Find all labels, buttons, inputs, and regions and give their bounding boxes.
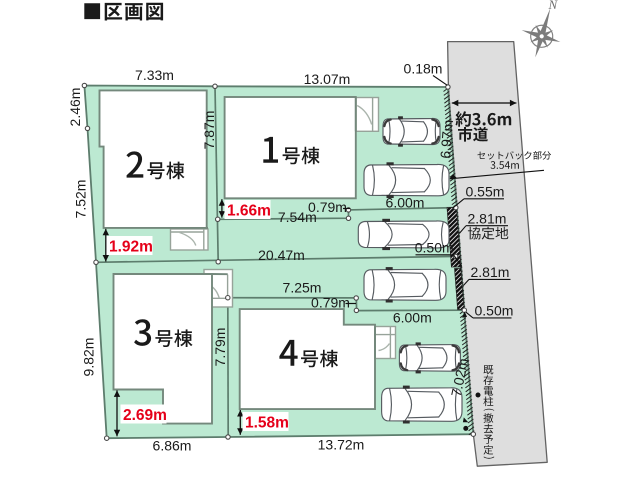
svg-text:6.00m: 6.00m <box>386 195 425 211</box>
svg-text:1.58m: 1.58m <box>245 415 289 432</box>
svg-text:0.55m: 0.55m <box>466 184 505 200</box>
svg-text:1.92m: 1.92m <box>109 239 153 256</box>
svg-text:1.66m: 1.66m <box>227 203 271 220</box>
svg-text:7.25m: 7.25m <box>283 280 322 296</box>
svg-text:0.50m: 0.50m <box>475 303 514 319</box>
svg-text:N: N <box>547 0 558 12</box>
svg-text:0.18m: 0.18m <box>404 61 443 77</box>
svg-text:7.52m: 7.52m <box>73 180 89 219</box>
svg-text:2.81m: 2.81m <box>471 264 510 280</box>
svg-text:13.07m: 13.07m <box>304 71 351 87</box>
svg-text:2.81m: 2.81m <box>468 211 507 227</box>
svg-text:20.47m: 20.47m <box>258 247 305 263</box>
svg-text:2.46m: 2.46m <box>67 88 83 127</box>
svg-text:6.00m: 6.00m <box>393 310 432 326</box>
svg-text:7.79m: 7.79m <box>212 328 228 367</box>
svg-text:7.33m: 7.33m <box>135 67 174 83</box>
svg-text:6.86m: 6.86m <box>153 438 192 454</box>
svg-text:0.79m: 0.79m <box>311 295 350 311</box>
svg-text:7.54m: 7.54m <box>278 209 317 225</box>
svg-text:6.97m: 6.97m <box>437 119 456 159</box>
svg-text:0.50m: 0.50m <box>415 240 454 256</box>
svg-text:13.72m: 13.72m <box>318 437 365 453</box>
svg-text:9.82m: 9.82m <box>81 338 97 377</box>
svg-text:2.69m: 2.69m <box>123 407 167 424</box>
svg-text:7.87m: 7.87m <box>201 111 217 150</box>
